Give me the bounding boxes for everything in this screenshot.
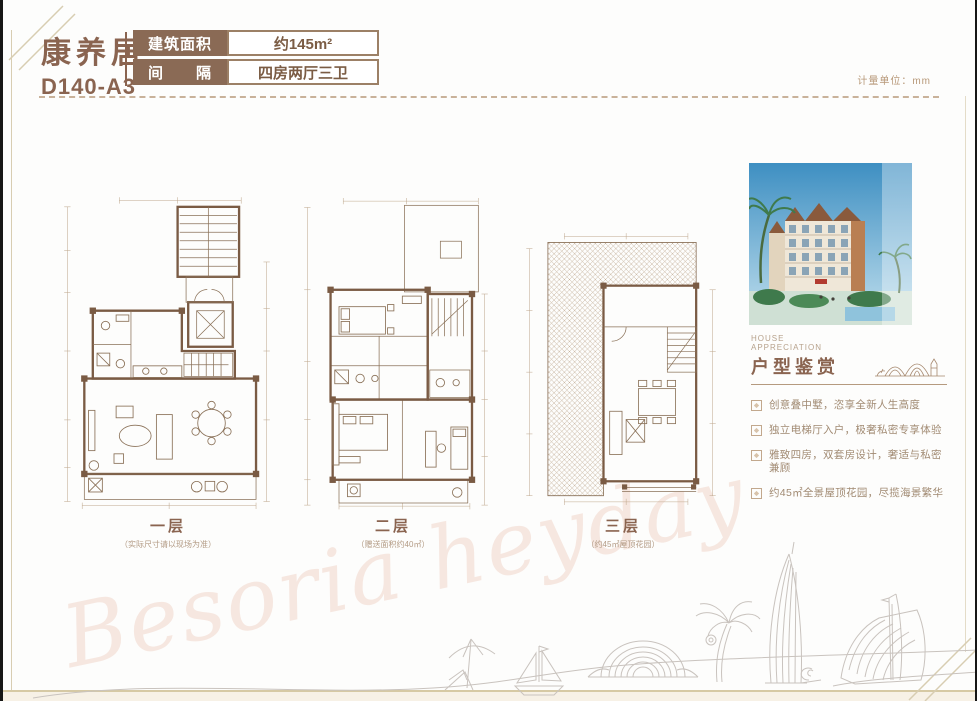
selling-point-3-text: 雅致四房，双套房设计，奢适与私密兼顾 <box>769 449 947 475</box>
building-photo <box>749 163 912 325</box>
selling-point-4-text: 约45㎡全景屋顶花园，尽揽海景繁华 <box>769 487 943 500</box>
title-block: 康养居 D140-A3 <box>41 28 146 100</box>
dashed-separator <box>39 96 939 98</box>
shell-sketch <box>801 668 821 683</box>
spec-row-area: 建筑面积 约145m² <box>133 30 379 56</box>
bullet-icon <box>751 450 762 461</box>
appreciation-header: HOUSE APPRECIATION 户型鉴赏 <box>751 334 947 385</box>
bullet-icon <box>751 400 762 411</box>
landmark-sketch-icon <box>873 352 947 380</box>
selling-point-2-text: 独立电梯厅入户，极奢私密专享体验 <box>769 424 942 437</box>
floor-1-plan <box>61 192 273 510</box>
ship-building-sketch <box>841 594 925 684</box>
bullet-icon <box>751 488 762 499</box>
project-name: 康养居 <box>41 28 146 72</box>
selling-point-1-text: 创意叠中墅，恣享全新人生高度 <box>769 399 920 412</box>
roof-terrace-hatch <box>548 242 696 495</box>
floor-3-plan <box>523 228 719 506</box>
title-divider <box>125 32 127 86</box>
sail-tower-sketch <box>765 542 807 683</box>
selling-point-1: 创意叠中墅，恣享全新人生高度 <box>751 399 947 412</box>
selling-point-2: 独立电梯厅入户，极奢私密专享体验 <box>751 424 947 437</box>
arch-building-sketch <box>588 641 698 677</box>
spec-label-area: 建筑面积 <box>133 30 227 56</box>
floor-2-plan <box>301 192 491 510</box>
spec-value-area: 约145m² <box>227 30 379 56</box>
selling-point-4: 约45㎡全景屋顶花园，尽揽海景繁华 <box>751 487 947 500</box>
shoreline-sketch <box>33 650 975 698</box>
brochure-screenshot: Besoria heyday 康养居 D140-A3 建筑面积 约145m² 间… <box>0 0 977 701</box>
spec-value-layout: 四房两厅三卫 <box>227 59 379 85</box>
sailboat-sketch <box>515 646 563 695</box>
brochure-page: Besoria heyday 康养居 D140-A3 建筑面积 约145m² 间… <box>3 0 975 701</box>
beach-sketch <box>3 520 975 701</box>
spec-row-layout: 间 隔 四房两厅三卫 <box>133 59 379 85</box>
bullet-icon <box>751 425 762 436</box>
measure-unit-note: 计量单位：mm <box>857 72 931 87</box>
appreciation-title-en-1: HOUSE <box>751 334 947 343</box>
selling-point-3: 雅致四房，双套房设计，奢适与私密兼顾 <box>751 449 947 475</box>
selling-points-list: 创意叠中墅，恣享全新人生高度 独立电梯厅入户，极奢私密专享体验 雅致四房，双套房… <box>751 399 947 500</box>
spec-label-layout: 间 隔 <box>133 59 227 85</box>
appreciation-section: HOUSE APPRECIATION 户型鉴赏 创意叠中墅，恣享全新人生高度 独… <box>751 334 947 512</box>
palm-tree-sketch <box>696 602 760 682</box>
spec-table: 建筑面积 约145m² 间 隔 四房两厅三卫 <box>133 30 379 88</box>
appreciation-title-en-2: APPRECIATION <box>751 343 947 352</box>
